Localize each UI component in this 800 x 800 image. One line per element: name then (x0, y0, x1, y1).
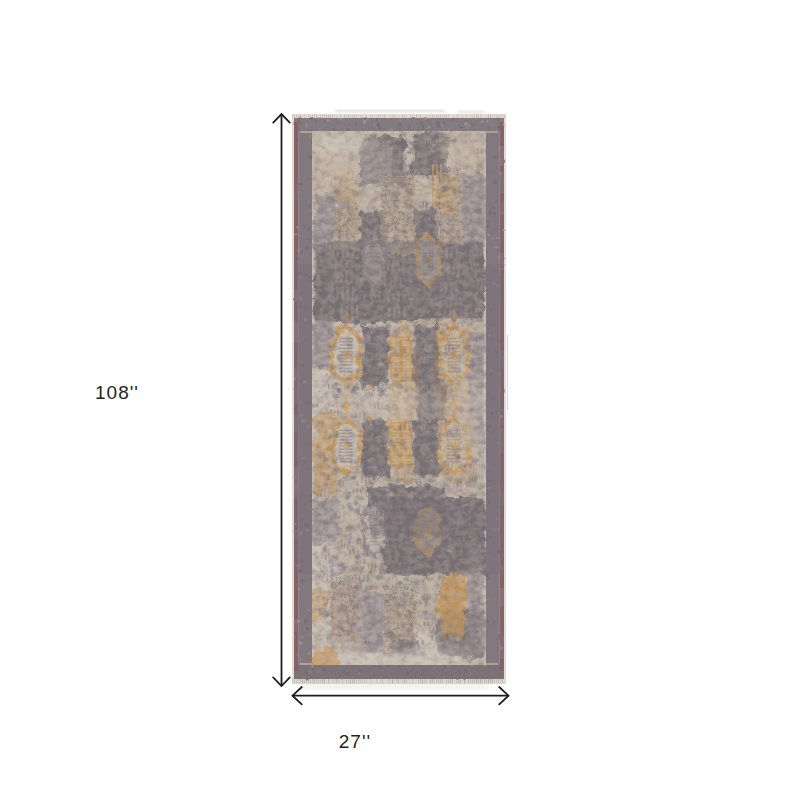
svg-text:108'': 108'' (95, 382, 139, 403)
svg-text:27'': 27'' (339, 731, 371, 752)
